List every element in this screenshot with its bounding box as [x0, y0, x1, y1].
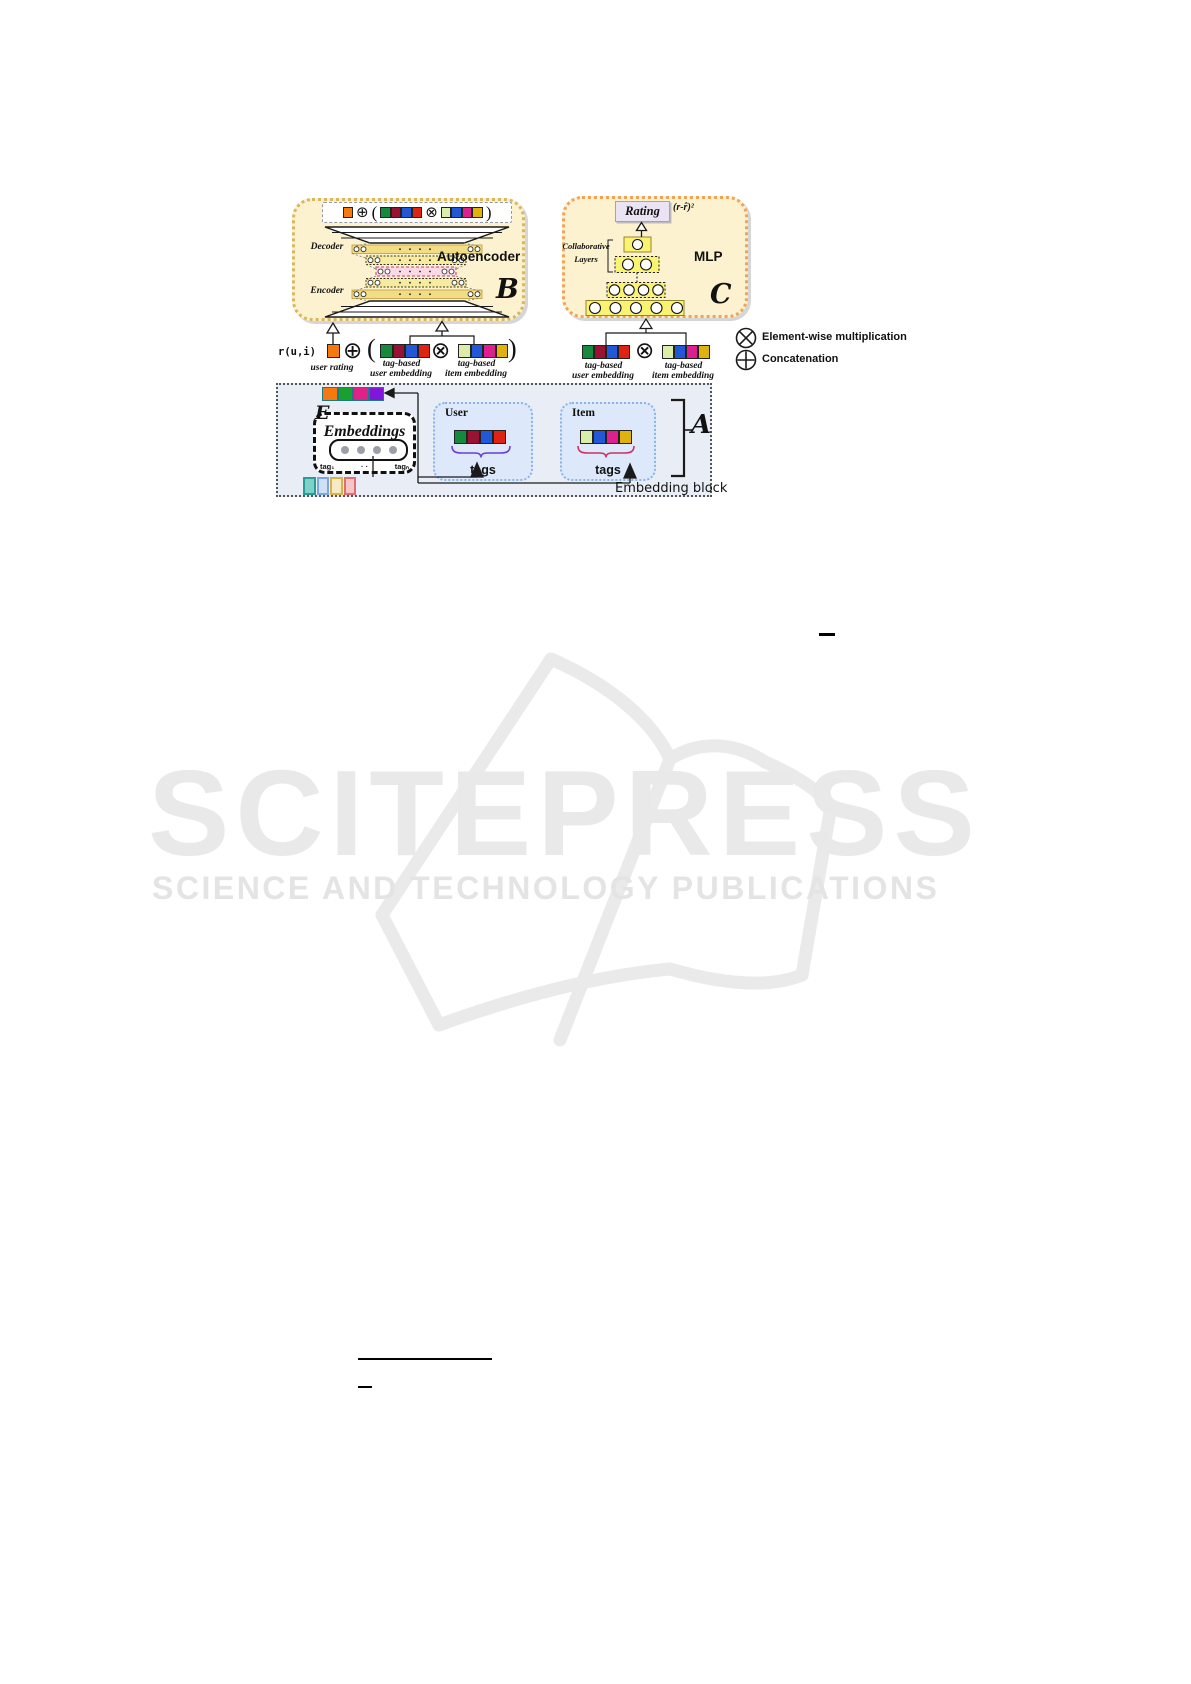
neuron-circle	[641, 259, 652, 270]
neuron-circle	[651, 303, 662, 314]
multiplication-icon: ⊗	[635, 340, 654, 363]
embedding-square	[686, 345, 698, 359]
neuron-circle	[633, 240, 643, 250]
item-embedding-label: item embedding	[633, 372, 733, 382]
embedding-square	[458, 344, 471, 358]
embedding-square	[327, 344, 340, 358]
embedding-square	[480, 430, 493, 444]
embedding-square	[454, 430, 467, 444]
embedding-square	[467, 430, 480, 444]
embedding-square	[322, 387, 338, 401]
autoencoder-letter: B	[496, 276, 519, 303]
collaborative-layers-label: Layers	[561, 255, 611, 264]
rating-arrow	[637, 223, 647, 238]
embedding-square	[303, 477, 316, 495]
embedding-square	[582, 345, 594, 359]
embedding-square	[338, 387, 354, 401]
embedding-square	[593, 430, 606, 444]
neuron-circle	[610, 303, 621, 314]
embedding-square	[674, 345, 686, 359]
embedding-square	[662, 345, 674, 359]
embedding-square	[380, 344, 393, 358]
neuron-circle	[609, 285, 619, 295]
embedding-square	[618, 345, 630, 359]
close-paren: )	[508, 336, 517, 362]
legend-concat-icon	[737, 351, 756, 370]
embedding-square	[483, 344, 496, 358]
embedding-square	[619, 430, 632, 444]
embedding-block-label: Embedding block	[615, 481, 727, 496]
embedding-block-letter: A	[691, 412, 711, 438]
loss-formula: (r-r̂)²	[673, 202, 694, 213]
open-paren: (	[367, 336, 376, 362]
tag-user-embedding-squares	[380, 344, 430, 358]
embedding-square	[580, 430, 593, 444]
neuron-circle	[638, 285, 648, 295]
raw-tag-squares	[303, 477, 356, 495]
tag-item-embedding-squares	[662, 345, 710, 359]
embedding-square	[606, 430, 619, 444]
user-rating-square	[327, 344, 340, 358]
user-tag-squares	[454, 430, 506, 444]
item-tag-squares	[580, 430, 632, 444]
autoencoder-title: Autoencoder	[437, 249, 520, 264]
embedding-square	[594, 345, 606, 359]
embedding-square	[330, 477, 343, 495]
paper-page: SCITEPRESS SCIENCE AND TECHNOLOGY PUBLIC…	[0, 0, 1191, 1684]
neuron-circle	[624, 285, 634, 295]
neuron-circle	[590, 303, 601, 314]
embedding-square	[353, 387, 369, 401]
mlp-letter: C	[710, 281, 732, 308]
encoder-trapezoid	[325, 301, 509, 317]
neuron-circle	[672, 303, 683, 314]
rating-function-text: r(u,i)	[278, 346, 316, 358]
neuron-circle	[653, 285, 663, 295]
tag-user-embedding-squares	[582, 345, 630, 359]
embedding-square	[317, 477, 330, 495]
user-tags-brace	[452, 446, 510, 458]
legend-multiply-icon	[737, 329, 756, 348]
mlp-title: MLP	[694, 249, 723, 264]
legend-concatenation-label: Concatenation	[762, 353, 838, 365]
mlp-layer-1-circles	[633, 240, 643, 250]
legend-multiplication-label: Element-wise multiplication	[762, 331, 907, 343]
output-embedding-vector	[322, 387, 384, 401]
embedding-square	[471, 344, 484, 358]
neuron-circle	[631, 303, 642, 314]
embedding-square	[418, 344, 431, 358]
collaborative-layers-label: Collaborative	[561, 242, 611, 251]
embedding-square	[393, 344, 406, 358]
embedding-square	[344, 477, 357, 495]
embeddings-letter: E	[315, 404, 329, 423]
tag-item-embedding-squares	[458, 344, 508, 358]
embedding-square	[606, 345, 618, 359]
decoder-label: Decoder	[304, 243, 350, 253]
encoder-label: Encoder	[304, 287, 350, 297]
embedding-square	[698, 345, 710, 359]
neuron-circle	[623, 259, 634, 270]
embedding-square	[369, 387, 385, 401]
decoder-trapezoid	[325, 227, 509, 243]
architecture-figure: ⊕ ( ⊗ ) Rating User tags Item tags Embed…	[0, 0, 1191, 1684]
item-tags-brace	[578, 446, 634, 458]
block-a-bracket	[671, 400, 692, 476]
item-embedding-label: item embedding	[426, 370, 526, 380]
embedding-square	[405, 344, 418, 358]
embedding-square	[493, 430, 506, 444]
embedding-square	[496, 344, 509, 358]
